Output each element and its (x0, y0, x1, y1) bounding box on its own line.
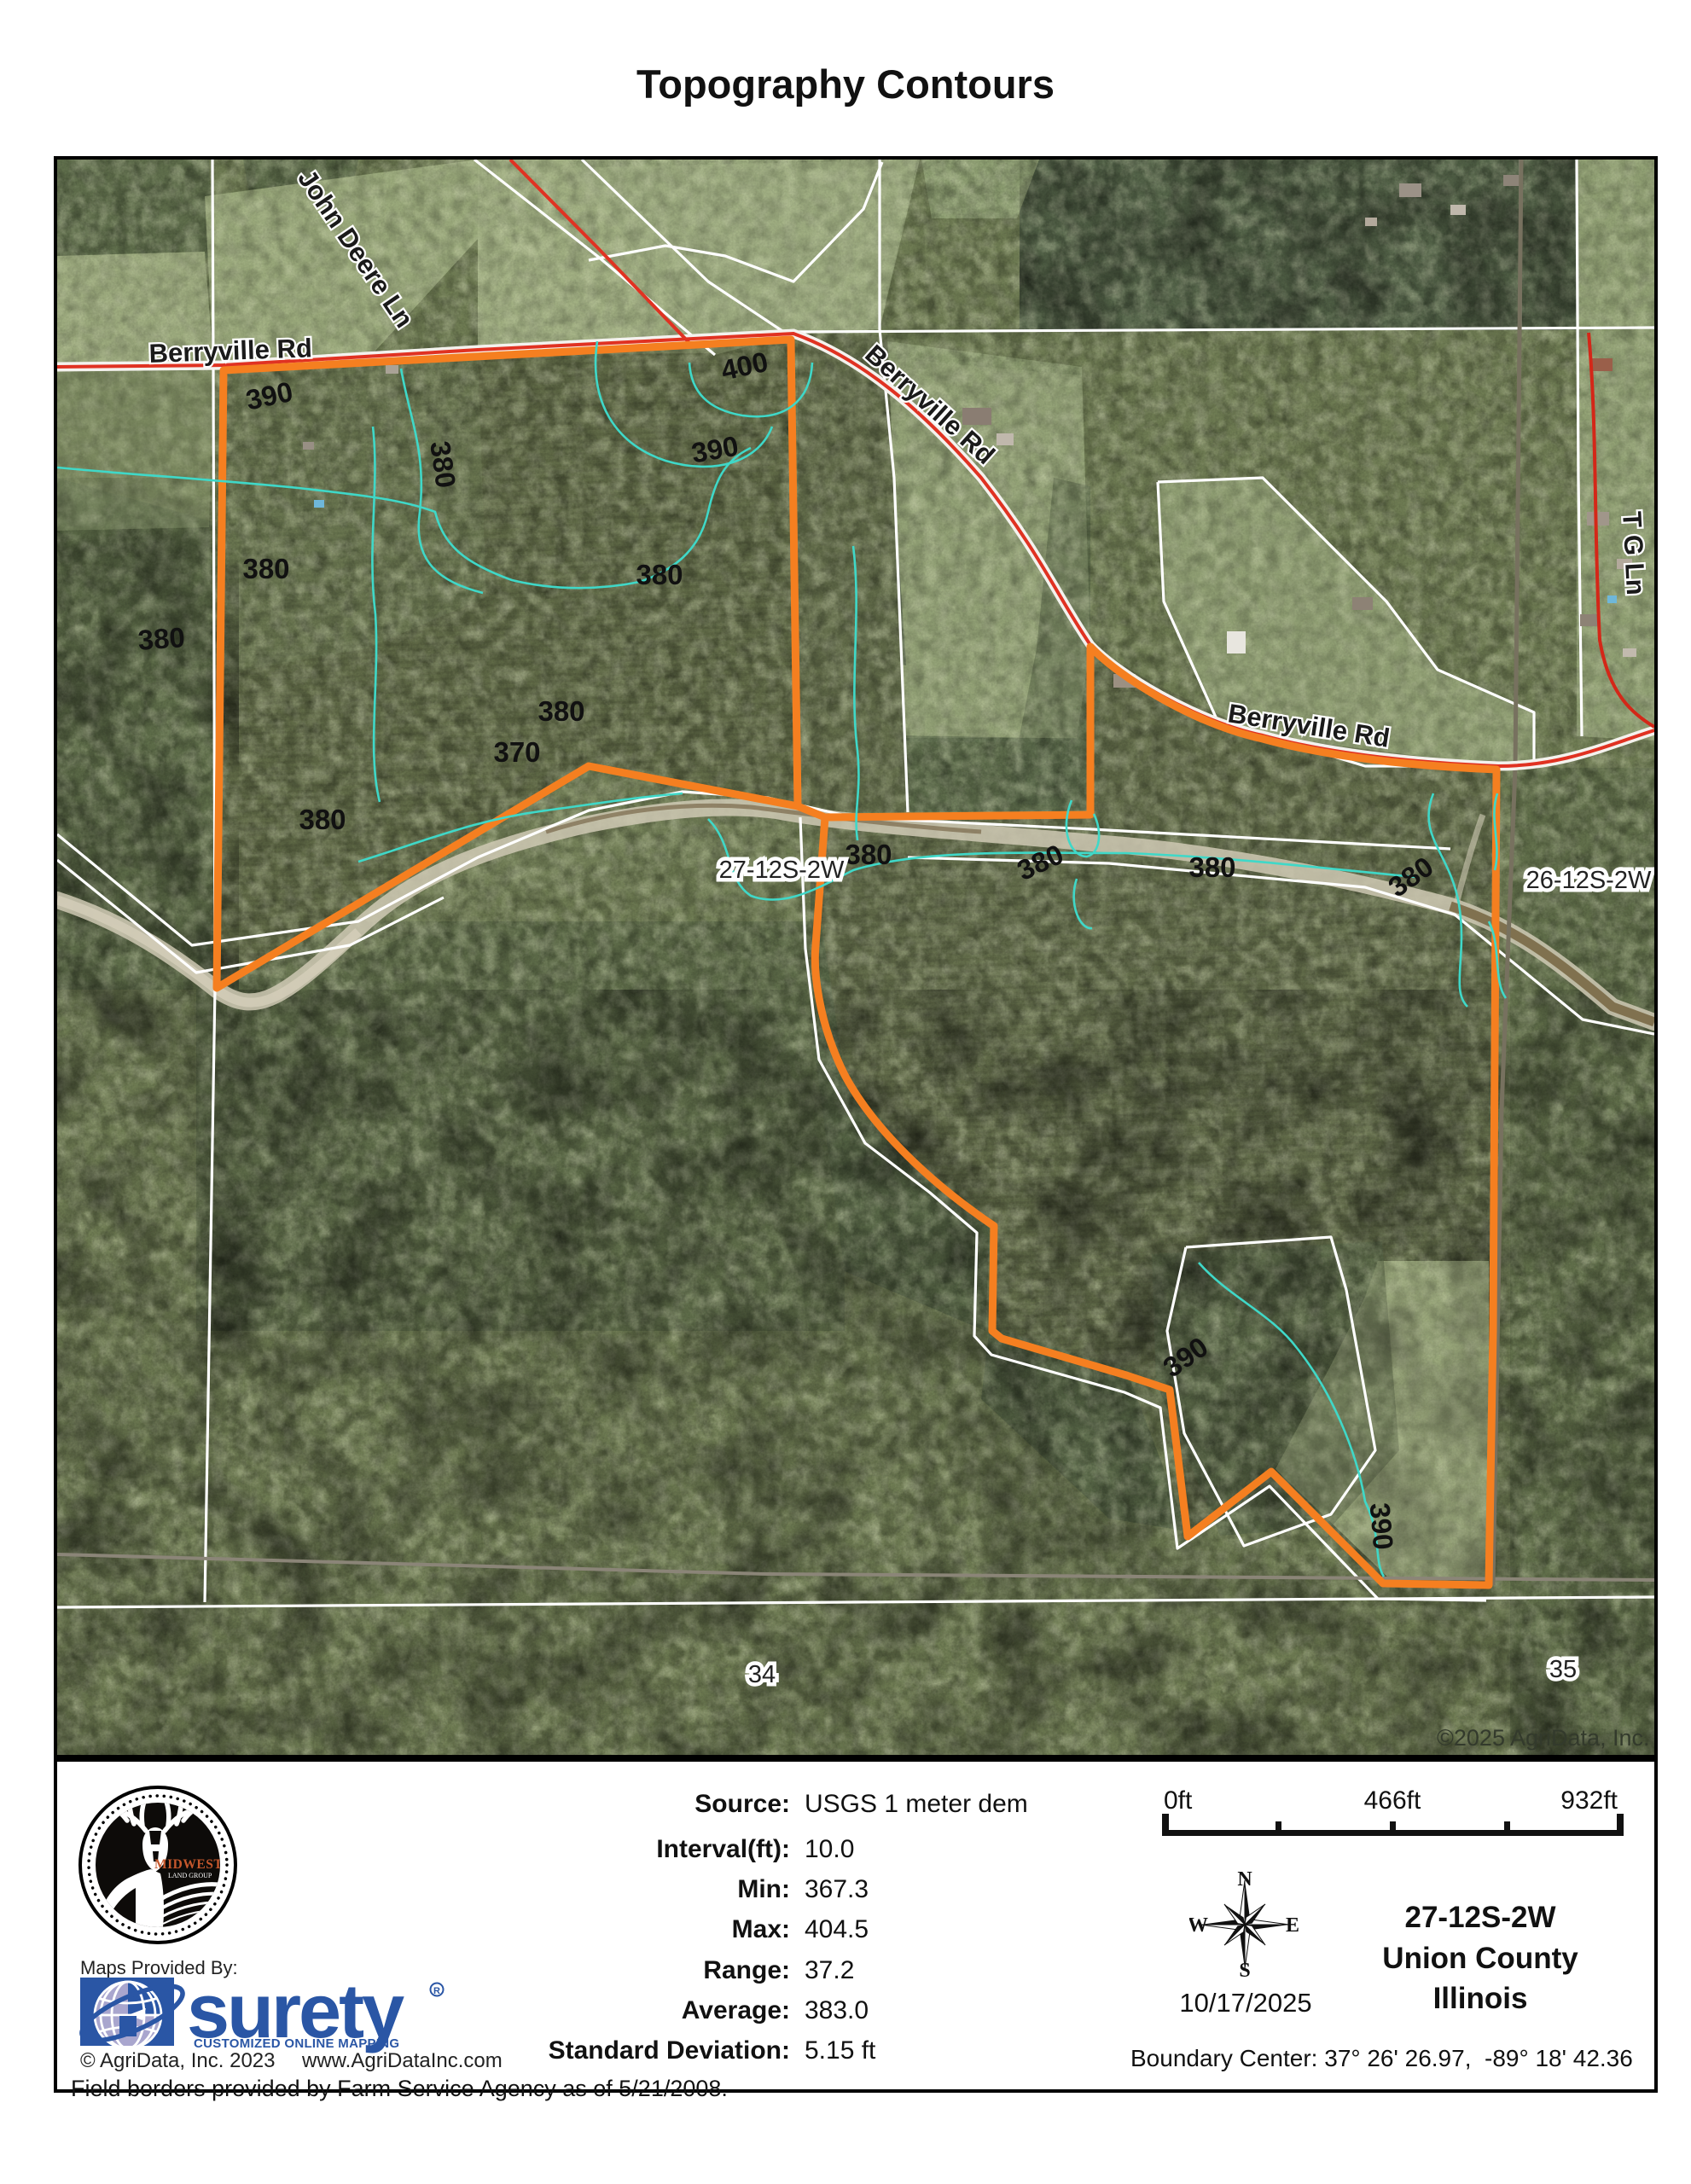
svg-text:35: 35 (1549, 1656, 1577, 1683)
svg-text:LAND GROUP: LAND GROUP (168, 1872, 212, 1879)
svg-text:34: 34 (748, 1661, 776, 1688)
svg-text:380: 380 (137, 621, 186, 656)
svg-text:©2025 AgriData, Inc.: ©2025 AgriData, Inc. (1437, 1725, 1650, 1751)
svg-text:Berryville Rd: Berryville Rd (148, 333, 312, 369)
svg-text:380: 380 (242, 553, 289, 584)
svg-text:380: 380 (636, 559, 683, 590)
svg-text:390: 390 (1364, 1501, 1400, 1551)
svg-text:370: 370 (493, 736, 540, 768)
svg-text:26-12S-2W: 26-12S-2W (1526, 867, 1652, 894)
svg-text:380: 380 (299, 804, 346, 835)
svg-text:MIDWEST: MIDWEST (154, 1857, 223, 1872)
svg-text:380: 380 (424, 439, 462, 491)
svg-text:R: R (433, 1986, 440, 1996)
svg-text:T G Ln: T G Ln (1617, 511, 1651, 596)
svg-text:27-12S-2W: 27-12S-2W (719, 857, 845, 884)
svg-text:380: 380 (1188, 851, 1235, 883)
svg-text:E: E (1286, 1914, 1299, 1937)
svg-text:380: 380 (538, 695, 584, 727)
svg-text:380: 380 (845, 839, 892, 870)
